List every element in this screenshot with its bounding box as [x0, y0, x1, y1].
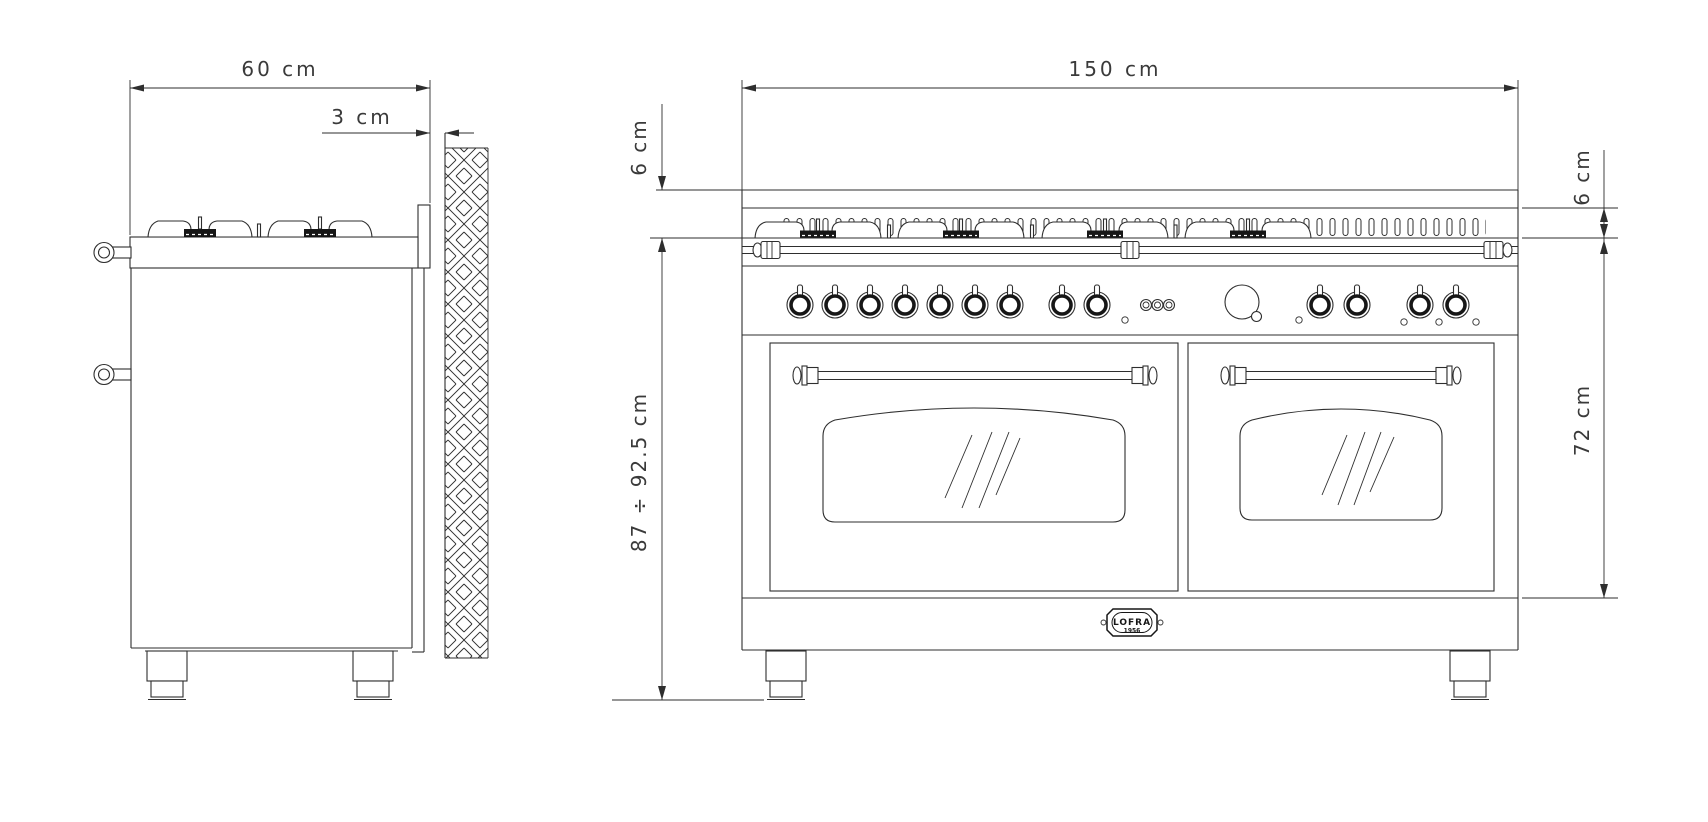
burner-knob-4[interactable] — [892, 285, 918, 318]
dim-height-label: 87 ÷ 92.5 cm — [627, 392, 651, 552]
burner-knob-7[interactable] — [997, 285, 1023, 318]
dim-oven-height-label: 72 cm — [1570, 384, 1594, 456]
badge-brand-text: LOFRA — [1113, 618, 1151, 628]
kick-band: LOFRA 1956 — [742, 598, 1518, 650]
burner-knob-3[interactable] — [857, 285, 883, 318]
timer-clock[interactable] — [1225, 285, 1262, 322]
front-view: LOFRA 1956 150 cm 6 cm — [612, 57, 1618, 700]
front-right-leg — [1450, 651, 1490, 700]
burner-knob-6[interactable] — [962, 285, 988, 318]
wall-section — [445, 133, 488, 658]
front-left-leg — [766, 651, 806, 700]
dim-wall-gap-3cm: 3 cm — [322, 105, 474, 137]
brand-badge: LOFRA 1956 — [1101, 609, 1163, 636]
oven-doors — [770, 343, 1494, 591]
side-grate-1 — [148, 217, 252, 237]
dim-depth-label: 60 cm — [241, 57, 318, 81]
dim-width-label: 150 cm — [1068, 57, 1161, 81]
oven-knob-right-1[interactable] — [1307, 285, 1333, 318]
ignition-button-2[interactable] — [1152, 300, 1163, 311]
control-panel — [742, 266, 1518, 335]
indicator-light-3 — [1401, 319, 1407, 325]
indicator-light-1 — [1122, 317, 1128, 323]
burner-knob-5[interactable] — [927, 285, 953, 318]
left-oven-door[interactable] — [770, 343, 1178, 591]
dim-height-87-92cm: 87 ÷ 92.5 cm — [612, 238, 764, 700]
side-cooker-body — [94, 205, 430, 700]
side-backguard — [418, 205, 430, 268]
technical-drawing-page: 60 cm 3 cm — [0, 0, 1708, 822]
side-hob-band — [130, 237, 418, 268]
oven-knob-right-2[interactable] — [1344, 285, 1370, 318]
dim-width-150cm: 150 cm — [742, 57, 1518, 190]
burner-knob-2[interactable] — [822, 285, 848, 318]
side-back-leg — [353, 651, 393, 700]
burner-knob-1[interactable] — [787, 285, 813, 318]
badge-year-text: 1956 — [1124, 628, 1141, 635]
towel-rail-cap-left — [753, 242, 780, 259]
side-towel-rail-door — [94, 365, 131, 385]
oven-knob-left-1[interactable] — [1049, 285, 1075, 318]
side-view: 60 cm 3 cm — [94, 57, 488, 700]
indicator-light-2 — [1296, 317, 1302, 323]
side-grate-2 — [268, 217, 372, 237]
front-towel-rail — [742, 242, 1518, 259]
indicator-light-4 — [1436, 319, 1442, 325]
towel-rail-cap-middle — [1121, 242, 1139, 259]
dim-oven-72cm: 72 cm — [1522, 238, 1618, 598]
right-oven-door[interactable] — [1188, 343, 1494, 591]
side-front-leg — [147, 651, 187, 700]
dim-backguard-right-label: 6 cm — [1570, 148, 1594, 206]
oven-knob-left-2[interactable] — [1084, 285, 1110, 318]
side-grate-pin — [258, 224, 261, 237]
dim-wall-gap-label: 3 cm — [331, 105, 393, 129]
dim-backguard-left-label: 6 cm — [627, 118, 651, 176]
range-cooker-drawing: 60 cm 3 cm — [0, 0, 1708, 822]
wall-hatch — [445, 148, 488, 658]
dim-backguard-left-6cm: 6 cm — [627, 104, 742, 190]
side-towel-rail-top — [94, 243, 131, 263]
oven-knob-right-4[interactable] — [1443, 285, 1469, 318]
indicator-light-5 — [1473, 319, 1479, 325]
ignition-button-3[interactable] — [1164, 300, 1175, 311]
ignition-button-1[interactable] — [1141, 300, 1152, 311]
dim-depth-60cm: 60 cm — [130, 57, 430, 235]
oven-knob-right-3[interactable] — [1407, 285, 1433, 318]
towel-rail-cap-right — [1484, 242, 1512, 259]
dim-backguard-right-6cm: 6 cm — [1522, 148, 1618, 238]
